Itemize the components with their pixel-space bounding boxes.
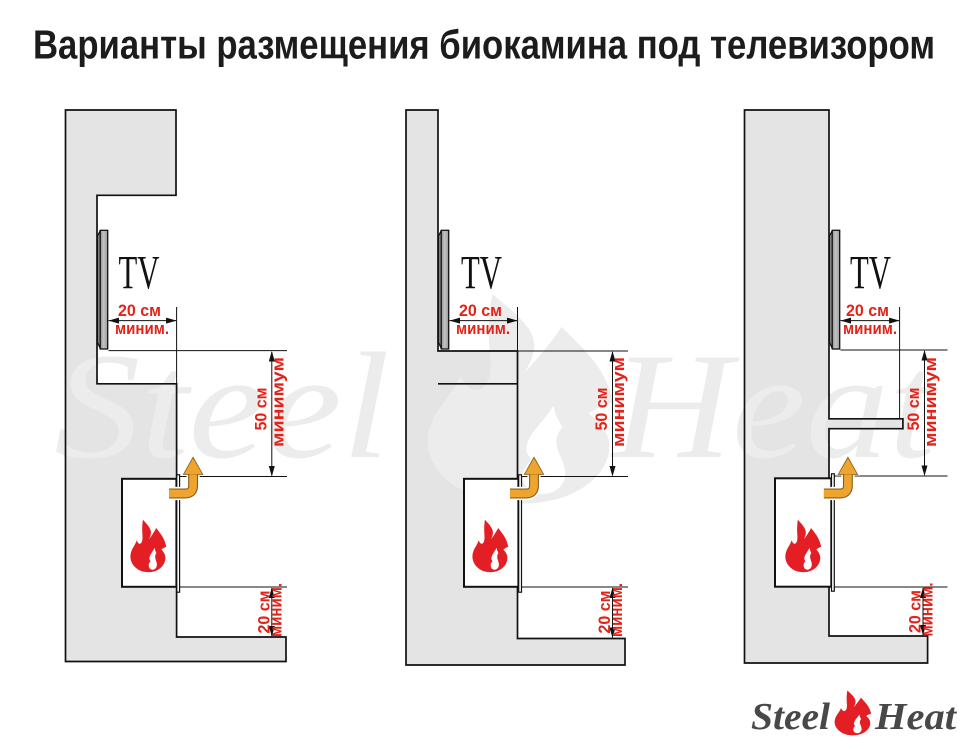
svg-text:Heat: Heat bbox=[874, 696, 958, 738]
svg-text:миним.: миним. bbox=[267, 583, 286, 637]
svg-text:миним.: миним. bbox=[607, 583, 626, 637]
svg-text:Варианты размещения биокамина: Варианты размещения биокамина под телеви… bbox=[33, 22, 935, 68]
svg-text:минимум: минимум bbox=[921, 357, 940, 447]
svg-text:миним.: миним. bbox=[115, 319, 169, 338]
svg-text:минимум: минимум bbox=[609, 357, 628, 447]
svg-text:Steel: Steel bbox=[751, 696, 830, 738]
svg-text:TV: TV bbox=[119, 246, 160, 299]
svg-text:миним.: миним. bbox=[456, 319, 510, 338]
svg-text:миним.: миним. bbox=[918, 583, 937, 637]
svg-text:20 см: 20 см bbox=[118, 301, 161, 320]
svg-text:20 см: 20 см bbox=[459, 301, 502, 320]
svg-text:TV: TV bbox=[461, 246, 502, 299]
svg-text:минимум: минимум bbox=[269, 357, 288, 447]
svg-text:20 см: 20 см bbox=[846, 301, 889, 320]
svg-text:TV: TV bbox=[850, 246, 891, 299]
svg-text:Heat: Heat bbox=[610, 322, 939, 490]
svg-text:миним.: миним. bbox=[843, 319, 897, 338]
